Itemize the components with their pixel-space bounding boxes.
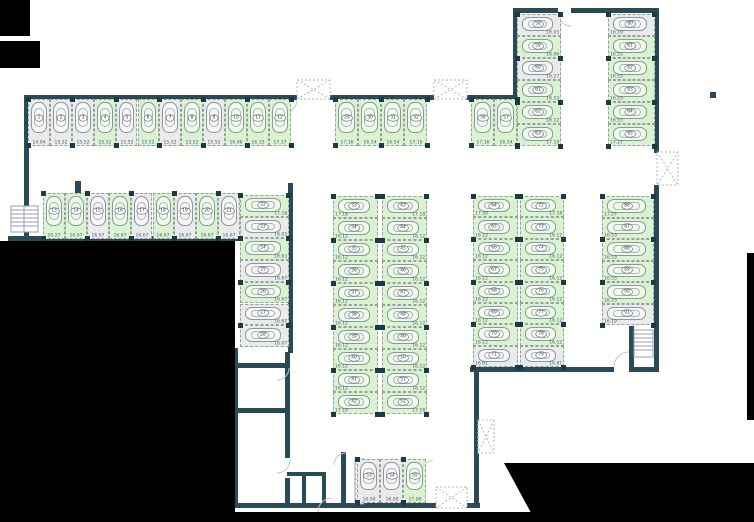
car-icon: 17 <box>134 196 150 226</box>
space-number: 23 <box>257 223 268 230</box>
parking-space-48[interactable]: 4816.12 <box>382 305 427 327</box>
space-number: 77 <box>535 309 546 316</box>
parking-space-74[interactable]: 7416.12 <box>520 239 564 260</box>
space-area-label: 16.12 <box>549 340 562 345</box>
space-area-label: 16.19 <box>604 319 617 324</box>
pillar <box>424 412 429 417</box>
car-icon: 8 <box>184 102 200 133</box>
parking-space-14[interactable]: 1416.67 <box>65 193 87 239</box>
space-number: 91 <box>621 310 632 317</box>
parking-space-8[interactable]: 815.52 <box>181 99 203 146</box>
space-area-label: 16.12 <box>475 233 488 238</box>
parking-space-86[interactable]: 8617.27 <box>602 196 654 218</box>
space-number: 37 <box>348 289 359 296</box>
car-icon: 32 <box>407 102 424 133</box>
pillar <box>515 56 520 61</box>
car-icon: 44 <box>387 221 419 235</box>
pillar <box>70 97 75 102</box>
space-area-label: 16.12 <box>335 255 348 260</box>
parking-space-89[interactable]: 8916.53 <box>602 261 654 283</box>
parking-space-68[interactable]: 6816.12 <box>473 282 518 303</box>
parking-space-72[interactable]: 7217.18 <box>520 196 564 217</box>
parking-space-83[interactable]: 8316.53 <box>608 80 655 102</box>
parking-space-5[interactable]: 515.52 <box>116 99 138 146</box>
parking-space-39[interactable]: 3916.12 <box>333 327 378 349</box>
space-area-label: 16.05 <box>546 30 559 35</box>
parking-space-16[interactable]: 1616.67 <box>109 193 131 239</box>
parking-space-45[interactable]: 4516.12 <box>382 240 427 262</box>
pillar <box>85 191 90 196</box>
space-area-label: 16.54 <box>499 140 512 145</box>
pillar <box>515 100 520 105</box>
car-icon: 20 <box>199 196 215 226</box>
space-number: 9 <box>210 114 219 121</box>
space-area-label: 17.30 <box>475 211 488 216</box>
space-area-label: 16.12 <box>549 254 562 259</box>
pillar <box>289 97 294 102</box>
car-icon: 1 <box>31 102 47 133</box>
pillar <box>380 238 385 243</box>
space-number: 8 <box>188 114 197 121</box>
parking-space-76[interactable]: 7616.12 <box>520 282 564 303</box>
car-icon: 49 <box>387 330 419 344</box>
space-number: 83 <box>624 86 635 93</box>
parking-space-90[interactable]: 9016.53 <box>602 282 654 304</box>
parking-space-57[interactable]: 5716.54 <box>494 99 517 146</box>
space-area-label: 16.12 <box>412 342 425 347</box>
parking-space-23[interactable]: 2316.03 <box>240 217 289 239</box>
space-area-label: 15.52 <box>186 140 199 145</box>
pillar <box>379 143 384 148</box>
pillar <box>331 194 336 199</box>
car-icon: 90 <box>607 285 646 299</box>
parking-space-88[interactable]: 8816.53 <box>602 239 654 261</box>
parking-space-31[interactable]: 3116.54 <box>381 99 404 146</box>
space-number: 62 <box>532 108 543 115</box>
space-number: 43 <box>397 202 408 209</box>
parking-space-66[interactable]: 6616.12 <box>473 239 518 260</box>
pillar <box>558 12 563 17</box>
space-area-label: 16.12 <box>546 118 559 123</box>
space-area-label: 16.67 <box>274 297 287 302</box>
car-icon: 75 <box>525 263 556 276</box>
space-area-label: 15.52 <box>120 140 133 145</box>
pillar <box>238 236 243 241</box>
pillar <box>561 237 566 242</box>
space-number: 63 <box>532 130 543 137</box>
space-area-label: 16.53 <box>604 297 617 302</box>
space-number: 47 <box>397 289 408 296</box>
pillar <box>652 56 657 61</box>
parking-space-80[interactable]: 8016.19 <box>608 14 655 36</box>
parking-space-1[interactable]: 114.04 <box>28 99 50 146</box>
parking-space-3[interactable]: 315.52 <box>72 99 94 146</box>
car-icon: 53 <box>360 462 377 490</box>
space-area-label: 16.53 <box>604 254 617 259</box>
car-icon: 31 <box>384 102 401 133</box>
pillar <box>606 100 611 105</box>
space-number: 16 <box>114 207 125 214</box>
parking-space-81[interactable]: 8116.53 <box>608 36 655 58</box>
parking-space-27[interactable]: 2716.67 <box>240 304 289 326</box>
space-area-label: 16.12 <box>335 386 348 391</box>
space-number: 2 <box>57 114 66 121</box>
parking-space-56[interactable]: 5617.16 <box>471 99 494 146</box>
space-number: 60 <box>532 64 543 71</box>
space-number: 39 <box>348 333 359 340</box>
pillar <box>469 97 474 102</box>
pillar <box>606 12 611 17</box>
parking-space-44[interactable]: 4416.12 <box>382 218 427 240</box>
car-icon: 30 <box>361 102 378 133</box>
space-area-label: 16.12 <box>412 255 425 260</box>
parking-space-41[interactable]: 4116.12 <box>333 370 378 392</box>
parking-space-75[interactable]: 7516.12 <box>520 260 564 281</box>
pillar <box>424 194 429 199</box>
space-area-label: 17.18 <box>274 210 287 215</box>
parking-space-85[interactable]: 8517.27 <box>608 124 655 146</box>
space-number: 70 <box>488 330 499 337</box>
parking-space-63[interactable]: 6317.19 <box>517 124 561 146</box>
parking-space-17[interactable]: 1716.67 <box>131 193 153 239</box>
pillar <box>469 143 474 148</box>
parking-space-73[interactable]: 7316.12 <box>520 217 564 238</box>
parking-space-4[interactable]: 415.52 <box>94 99 116 146</box>
pillar <box>651 323 656 328</box>
pillar <box>651 194 656 199</box>
parking-space-22[interactable]: 2217.18 <box>240 195 289 217</box>
pillar <box>85 236 90 241</box>
pillar <box>558 56 563 61</box>
space-area-label: 16.12 <box>335 277 348 282</box>
parking-space-10[interactable]: 1016.06 <box>225 99 247 146</box>
pillar <box>380 325 385 330</box>
space-area-label: 14.04 <box>32 140 45 145</box>
pillar <box>172 236 177 241</box>
parking-space-42[interactable]: 4217.18 <box>333 392 378 414</box>
space-number: 42 <box>348 398 359 405</box>
space-area-label: 16.07 <box>274 341 287 346</box>
car-icon: 55 <box>406 462 423 490</box>
pillar <box>238 280 243 285</box>
parking-space-49[interactable]: 4916.12 <box>382 327 427 349</box>
car-icon: 14 <box>68 196 84 226</box>
pillar <box>401 500 406 505</box>
parking-spaces-layer: 114.04215.52315.52415.52515.52615.52715.… <box>0 0 754 522</box>
pillar <box>355 500 360 505</box>
space-area-label: 16.53 <box>610 74 623 79</box>
space-area-label: 16.54 <box>386 140 399 145</box>
space-number: 61 <box>532 86 543 93</box>
space-area-label: 16.12 <box>335 364 348 369</box>
space-number: 32 <box>410 114 421 121</box>
pillar <box>355 457 360 462</box>
space-number: 58 <box>532 20 543 27</box>
parking-space-24[interactable]: 2416.63 <box>240 238 289 260</box>
pillar <box>331 325 336 330</box>
parking-space-84[interactable]: 8416.53 <box>608 102 655 124</box>
pillar <box>401 457 406 462</box>
space-area-label: 16.12 <box>475 318 488 323</box>
space-area-label: 16.33 <box>251 140 264 145</box>
parking-space-61[interactable]: 6116.53 <box>517 80 561 102</box>
pillar <box>471 322 476 327</box>
space-number: 22 <box>257 201 268 208</box>
pillar <box>518 280 523 285</box>
car-icon: 9 <box>206 102 222 133</box>
space-number: 53 <box>363 472 374 479</box>
space-area-label: 16.12 <box>475 340 488 345</box>
space-area-label: 17.16 <box>476 140 489 145</box>
parking-space-71[interactable]: 7116.81 <box>473 346 518 367</box>
space-number: 81 <box>624 42 635 49</box>
space-area-label: 15.52 <box>164 140 177 145</box>
space-area-label: 16.67 <box>157 233 170 238</box>
car-icon: 67 <box>478 263 510 276</box>
space-area-label: 16.67 <box>135 233 148 238</box>
space-area-label: 16.12 <box>475 275 488 280</box>
pillar <box>286 236 291 241</box>
pillar <box>600 194 605 199</box>
pillar <box>652 100 657 105</box>
car-icon: 57 <box>497 102 514 133</box>
space-area-label: 17.00 <box>408 497 421 502</box>
parking-space-78[interactable]: 7816.12 <box>520 324 564 345</box>
parking-space-12[interactable]: 1217.37 <box>269 99 291 146</box>
pillar <box>26 143 31 148</box>
space-number: 3 <box>78 114 87 121</box>
parking-space-36[interactable]: 3616.12 <box>333 261 378 283</box>
pillar <box>425 143 430 148</box>
space-area-label: 16.00 <box>362 497 375 502</box>
parking-space-54[interactable]: 5416.00 <box>380 459 403 503</box>
space-number: 69 <box>488 309 499 316</box>
space-area-label: 16.12 <box>412 299 425 304</box>
space-number: 76 <box>535 288 546 295</box>
pillar <box>286 280 291 285</box>
parking-space-70[interactable]: 7016.12 <box>473 324 518 345</box>
parking-space-60[interactable]: 6016.27 <box>517 58 561 80</box>
parking-space-32[interactable]: 3217.16 <box>404 99 427 146</box>
space-area-label: 17.18 <box>549 211 562 216</box>
parking-space-26[interactable]: 2616.67 <box>240 282 289 304</box>
pillar <box>518 322 523 327</box>
parking-space-6[interactable]: 615.52 <box>138 99 160 146</box>
parking-space-46[interactable]: 4616.12 <box>382 261 427 283</box>
space-number: 67 <box>488 266 499 273</box>
pillar <box>289 143 294 148</box>
space-number: 26 <box>257 288 268 295</box>
pillar <box>425 97 430 102</box>
car-icon: 34 <box>338 221 370 235</box>
space-number: 54 <box>386 472 397 479</box>
parking-space-18[interactable]: 1816.67 <box>153 193 175 239</box>
pillar <box>238 323 243 328</box>
parking-space-65[interactable]: 6516.12 <box>473 217 518 238</box>
space-area-label: 16.53 <box>610 52 623 57</box>
space-number: 59 <box>532 42 543 49</box>
pillar <box>331 412 336 417</box>
parking-space-38[interactable]: 3816.12 <box>333 305 378 327</box>
parking-space-33[interactable]: 3317.18 <box>333 196 378 218</box>
pillar <box>518 237 523 242</box>
space-area-label: 16.67 <box>179 233 192 238</box>
car-icon: 15 <box>90 196 106 226</box>
pillar <box>333 143 338 148</box>
pillar <box>286 193 291 198</box>
car-icon: 5 <box>119 102 135 133</box>
space-area-label: 16.27 <box>546 74 559 79</box>
car-icon: 7 <box>162 102 178 133</box>
pillar <box>216 236 221 241</box>
space-area-label: 17.18 <box>335 408 348 413</box>
space-number: 6 <box>144 114 153 121</box>
pillar <box>515 144 520 149</box>
car-icon: 18 <box>156 196 172 226</box>
space-area-label: 15.52 <box>208 140 221 145</box>
car-icon: 4 <box>97 102 113 133</box>
space-number: 85 <box>624 130 635 137</box>
pillar <box>129 191 134 196</box>
pillar <box>471 194 476 199</box>
pillar <box>652 12 657 17</box>
space-area-label: 16.67 <box>113 233 126 238</box>
space-area-label: 16.67 <box>69 233 82 238</box>
pillar <box>333 97 338 102</box>
parking-space-53[interactable]: 5316.00 <box>357 459 380 503</box>
pillar <box>606 144 611 149</box>
space-area-label: 15.52 <box>76 140 89 145</box>
parking-space-34[interactable]: 3416.12 <box>333 218 378 240</box>
space-area-label: 16.12 <box>475 297 488 302</box>
car-icon: 10 <box>228 102 244 133</box>
parking-space-55[interactable]: 5517.00 <box>403 459 426 503</box>
pillar <box>26 97 31 102</box>
pillar <box>600 237 605 242</box>
parking-space-58[interactable]: 5816.05 <box>517 14 561 36</box>
parking-space-51[interactable]: 5116.12 <box>382 370 427 392</box>
space-number: 38 <box>348 311 359 318</box>
parking-space-79[interactable]: 7916.81 <box>520 346 564 367</box>
pillar <box>172 191 177 196</box>
parking-space-11[interactable]: 1116.33 <box>247 99 269 146</box>
pillar <box>652 144 657 149</box>
pillar <box>41 236 46 241</box>
car-icon: 29 <box>338 102 355 133</box>
parking-space-52[interactable]: 5217.18 <box>382 392 427 414</box>
car-icon: 43 <box>387 199 419 213</box>
parking-space-29[interactable]: 2917.16 <box>335 99 358 146</box>
parking-space-9[interactable]: 915.52 <box>203 99 225 146</box>
space-area-label: 16.54 <box>363 140 376 145</box>
space-number: 19 <box>180 207 191 214</box>
space-area-label: 16.12 <box>335 321 348 326</box>
parking-space-25[interactable]: 2516.67 <box>240 260 289 282</box>
space-number: 48 <box>397 311 408 318</box>
space-area-label: 17.16 <box>409 140 422 145</box>
space-number: 89 <box>621 267 632 274</box>
space-area-label: 17.27 <box>604 211 617 216</box>
pillar <box>600 323 605 328</box>
parking-space-82[interactable]: 8216.53 <box>608 58 655 80</box>
pillar <box>518 365 523 370</box>
parking-space-47[interactable]: 4716.12 <box>382 283 427 305</box>
car-icon: 16 <box>112 196 128 226</box>
parking-space-91[interactable]: 9116.19 <box>602 304 654 326</box>
parking-space-13[interactable]: 1320.27 <box>43 193 65 239</box>
space-area-label: 16.53 <box>604 233 617 238</box>
parking-space-7[interactable]: 715.52 <box>159 99 181 146</box>
pillar <box>245 97 250 102</box>
space-number: 64 <box>488 202 499 209</box>
space-area-label: 17.37 <box>273 140 286 145</box>
parking-space-64[interactable]: 6417.30 <box>473 196 518 217</box>
space-number: 87 <box>621 224 632 231</box>
parking-space-19[interactable]: 1916.67 <box>174 193 196 239</box>
space-number: 4 <box>100 114 109 121</box>
pillar <box>380 281 385 286</box>
parking-space-69[interactable]: 6916.12 <box>473 303 518 324</box>
pillar <box>424 281 429 286</box>
space-area-label: 17.27 <box>610 140 623 145</box>
parking-space-20[interactable]: 2016.67 <box>196 193 218 239</box>
space-number: 17 <box>136 207 147 214</box>
parking-space-43[interactable]: 4317.18 <box>382 196 427 218</box>
pillar <box>216 191 221 196</box>
parking-space-35[interactable]: 3516.12 <box>333 240 378 262</box>
space-number: 80 <box>624 20 635 27</box>
space-area-label: 15.52 <box>142 140 155 145</box>
car-icon: 6 <box>141 102 157 133</box>
space-area-label: 15.52 <box>98 140 111 145</box>
parking-space-59[interactable]: 5916.06 <box>517 36 561 58</box>
pillar <box>238 193 243 198</box>
pillar <box>380 412 385 417</box>
pillar <box>558 100 563 105</box>
pillar <box>157 143 162 148</box>
car-icon: 56 <box>474 102 491 133</box>
parking-space-37[interactable]: 3716.12 <box>333 283 378 305</box>
car-icon: 54 <box>383 462 400 490</box>
space-area-label: 16.12 <box>335 299 348 304</box>
space-number: 56 <box>477 114 488 121</box>
parking-space-67[interactable]: 6716.12 <box>473 260 518 281</box>
car-icon: 2 <box>53 102 69 133</box>
parking-space-87[interactable]: 8716.53 <box>602 218 654 240</box>
parking-space-50[interactable]: 5016.12 <box>382 349 427 371</box>
space-number: 30 <box>364 114 375 121</box>
parking-space-2[interactable]: 215.52 <box>50 99 72 146</box>
space-area-label: 16.00 <box>385 497 398 502</box>
parking-space-28[interactable]: 2816.07 <box>240 325 289 347</box>
pillar <box>114 97 119 102</box>
pillar <box>201 143 206 148</box>
parking-space-15[interactable]: 1516.67 <box>87 193 109 239</box>
pillar <box>558 144 563 149</box>
parking-space-21[interactable]: 2116.67 <box>218 193 240 239</box>
parking-space-30[interactable]: 3016.54 <box>358 99 381 146</box>
parking-space-40[interactable]: 4016.12 <box>333 349 378 371</box>
parking-space-62[interactable]: 6216.12 <box>517 102 561 124</box>
space-area-label: 16.12 <box>335 342 348 347</box>
parking-space-77[interactable]: 7716.12 <box>520 303 564 324</box>
pillar <box>331 238 336 243</box>
space-area-label: 20.27 <box>47 233 60 238</box>
pillar <box>471 365 476 370</box>
space-number: 34 <box>348 224 359 231</box>
space-number: 75 <box>535 266 546 273</box>
pillar <box>245 143 250 148</box>
